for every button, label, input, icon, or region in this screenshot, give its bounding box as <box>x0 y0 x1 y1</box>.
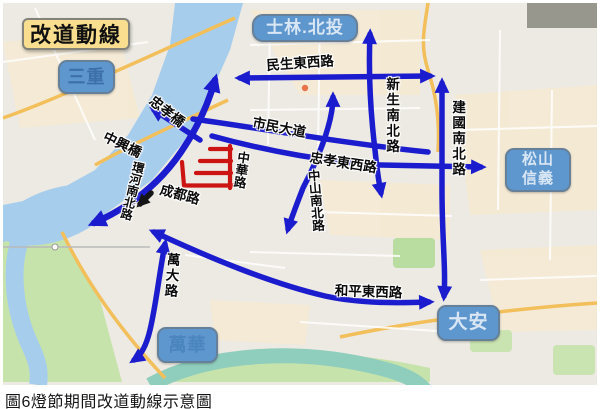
area-box-wanhua: 萬華 <box>157 327 218 363</box>
legend-title-text: 改道動線 <box>30 19 122 49</box>
area-box-sanchong-label: 三重 <box>68 66 106 89</box>
figure-caption: 圖6燈節期間改道動線示意圖 <box>5 388 212 409</box>
station-dot <box>52 244 58 250</box>
area-box-songshan-xinyi-label: 松山信義 <box>521 151 555 189</box>
route-jianguo <box>442 83 445 296</box>
legend-title-box: 改道動線 <box>22 18 130 50</box>
poi-dot <box>302 85 308 91</box>
road-label-wanda: 萬大路 <box>162 252 179 299</box>
dark-city-block <box>527 3 597 28</box>
area-box-shilin-beitou-label: 士林.北投 <box>266 17 344 38</box>
road-label-jianguo: 建國南北路 <box>450 100 464 178</box>
road-label-heping: 和平東西路 <box>335 284 403 301</box>
area-box-shilin-beitou: 士林.北投 <box>252 14 358 42</box>
area-box-wanhua-label: 萬華 <box>169 334 207 357</box>
area-box-songshan-xinyi: 松山信義 <box>505 148 571 192</box>
area-box-sanchong: 三重 <box>58 60 115 94</box>
area-box-daan: 大安 <box>437 305 500 341</box>
area-box-daan-label: 大安 <box>448 311 488 335</box>
diversion-route-map-figure: 民生東西路 新生南北路 建國南北路 中山南北路 中華路 忠孝東西路 市民大道 忠… <box>0 0 600 409</box>
route-minsheng <box>240 76 430 78</box>
road-label-xinsheng: 新生南北路 <box>384 77 398 155</box>
